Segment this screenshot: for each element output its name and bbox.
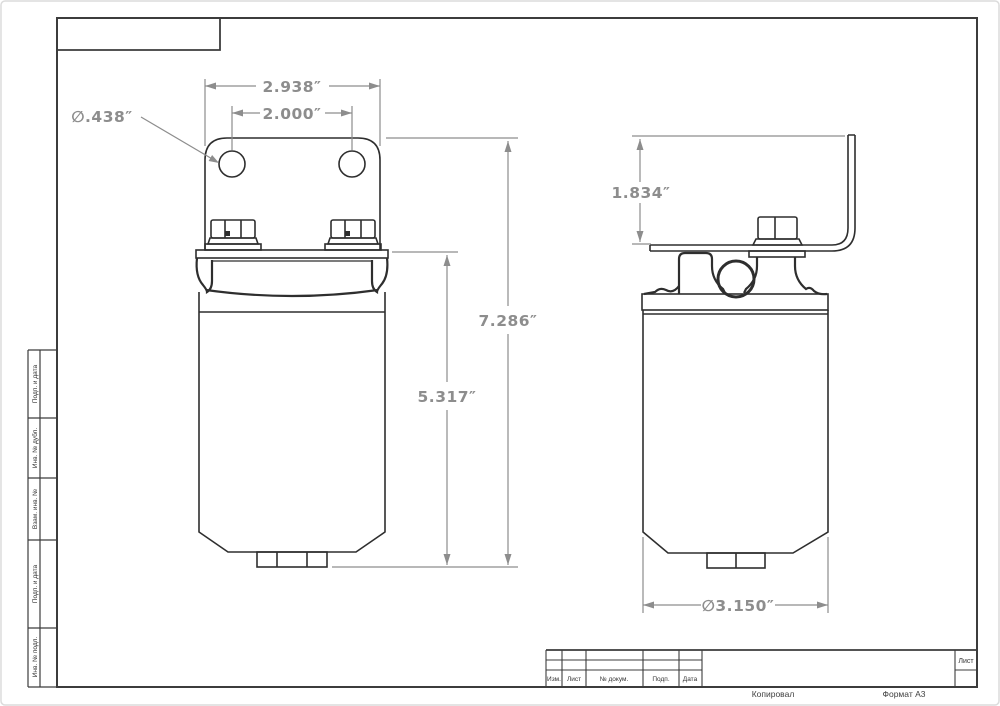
left-stamp-label: Подп. и дата: [32, 364, 39, 403]
left-stamp-label: Взам. инв. №: [32, 489, 39, 529]
dim-label-bracket-height: 1.834″: [612, 184, 671, 202]
dim-label-hole-diameter: ∅.438″: [71, 108, 132, 126]
format-label: Формат A3: [883, 689, 926, 699]
drawing-sheet: Подп. и дата Инв. № дубл. Взам. инв. № П…: [0, 0, 1000, 706]
stamp-col-podp: Подп.: [652, 676, 669, 683]
dim-label-body-height: 5.317″: [418, 388, 477, 406]
stamp-col-izm: Изм.: [547, 676, 561, 683]
sheet-edge: [1, 1, 999, 705]
copied-label: Копировал: [752, 689, 795, 699]
dim-label-hole-spacing: 2.000″: [263, 105, 322, 123]
dim-label-body-diameter: ∅3.150″: [702, 597, 775, 615]
dim-label-overall-height: 7.286″: [479, 312, 538, 330]
stamp-col-list: Лист: [567, 676, 581, 683]
dim-label-bracket-width: 2.938″: [263, 78, 322, 96]
left-stamp-label: Инв. № подл.: [32, 637, 39, 678]
technical-drawing-canvas: Подп. и дата Инв. № дубл. Взам. инв. № П…: [0, 0, 1000, 706]
stamp-col-docnum: № докум.: [600, 676, 629, 683]
bolt-mark: [225, 231, 230, 236]
bolt-mark: [345, 231, 350, 236]
left-stamp-label: Подп. и дата: [32, 564, 39, 603]
stamp-col-data: Дата: [683, 676, 698, 683]
left-stamp-label: Инв. № дубл.: [31, 428, 39, 468]
sheet-number-label: Лист: [958, 658, 974, 665]
